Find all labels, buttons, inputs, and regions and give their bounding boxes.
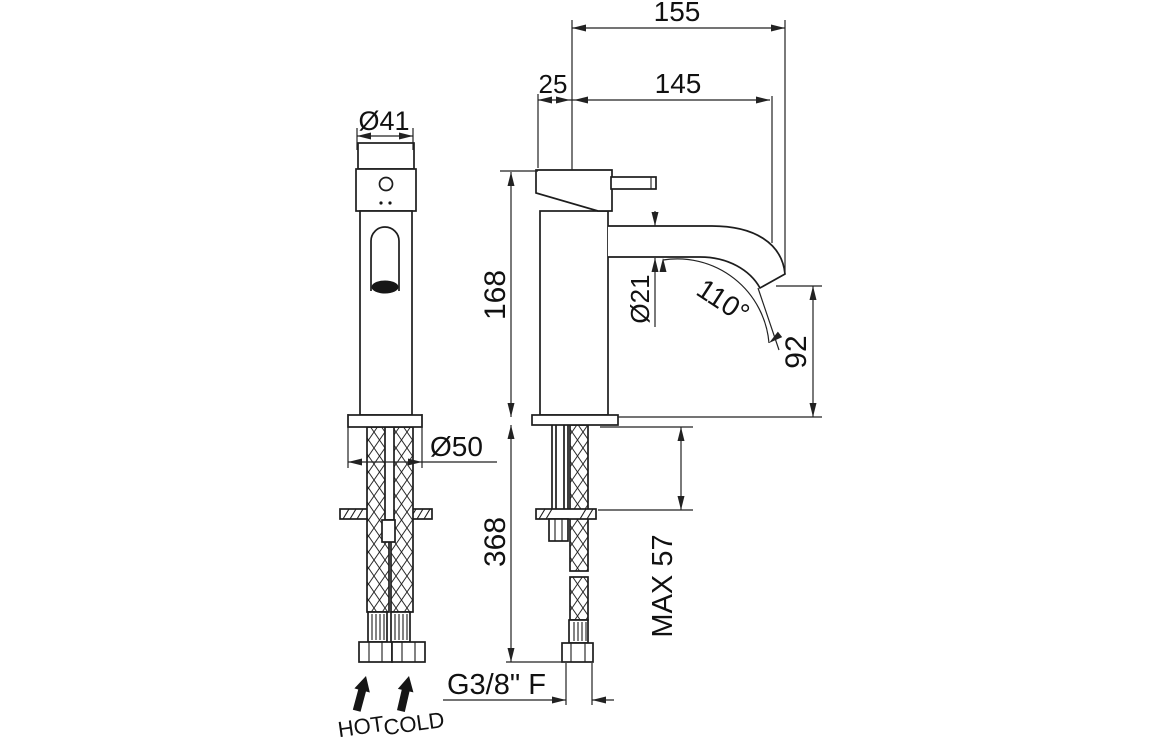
dim-outlet-height-label: 92 (780, 335, 813, 368)
dim-connection-thread: G3/8" F (443, 663, 614, 705)
hose-end-side (562, 620, 593, 662)
handle-section-front (356, 169, 416, 211)
flexible-hose-side (570, 425, 588, 620)
dim-handle-dia-label: Ø41 (358, 106, 409, 136)
dim-connection-thread-label: G3/8" F (447, 669, 546, 701)
base-plate-front (348, 415, 422, 427)
stud-nut-front (382, 520, 395, 542)
handle-lever (611, 177, 656, 189)
indicator-dot-right (388, 201, 391, 204)
faucet-technical-drawing: HOT COLD Ø41 Ø50 (0, 0, 1156, 742)
dim-max-thickness: MAX 57 (598, 427, 693, 638)
dim-axis-offset-label: 25 (539, 69, 568, 99)
dim-max-thickness-label: MAX 57 (647, 534, 679, 637)
hose-end-hot (359, 612, 392, 662)
dim-install-depth: 368 (479, 425, 563, 662)
dim-overall-reach-label: 155 (654, 0, 701, 27)
dim-overall-reach: 155 (572, 0, 785, 32)
base-plate-side (532, 415, 618, 425)
dim-base-dia-label: Ø50 (430, 431, 483, 462)
spout-top-cap-front (358, 143, 414, 169)
aerator (372, 281, 399, 294)
side-view-dimensions: 155 25 145 168 368 (443, 0, 822, 705)
tap-body-side (540, 211, 608, 415)
technical-drawing-page: HOT COLD Ø41 Ø50 (0, 0, 1156, 742)
dim-body-height: 168 (479, 172, 515, 417)
tap-body-front (360, 211, 412, 415)
handle-cap-side (536, 170, 612, 211)
dim-spout-dia-label: Ø21 (625, 274, 655, 323)
dim-install-depth-label: 368 (479, 517, 512, 567)
indicator-dot-left (379, 201, 382, 204)
mounting-bracket-side (536, 509, 596, 519)
stud-nut-side (549, 519, 568, 541)
hose-end-cold (391, 612, 425, 662)
hot-label: HOT (336, 711, 385, 742)
cold-label: COLD (382, 707, 446, 740)
mounting-stud-front (385, 427, 394, 520)
dim-spout-reach: 145 (574, 68, 770, 104)
hot-flow-arrow (349, 674, 374, 713)
dim-spout-reach-label: 145 (655, 68, 702, 99)
handle-button (380, 178, 393, 191)
cold-flow-arrow (393, 674, 417, 713)
dim-body-height-label: 168 (479, 270, 512, 320)
dim-spout-angle-label: 110° (691, 273, 755, 329)
mounting-stud-side (552, 425, 568, 509)
